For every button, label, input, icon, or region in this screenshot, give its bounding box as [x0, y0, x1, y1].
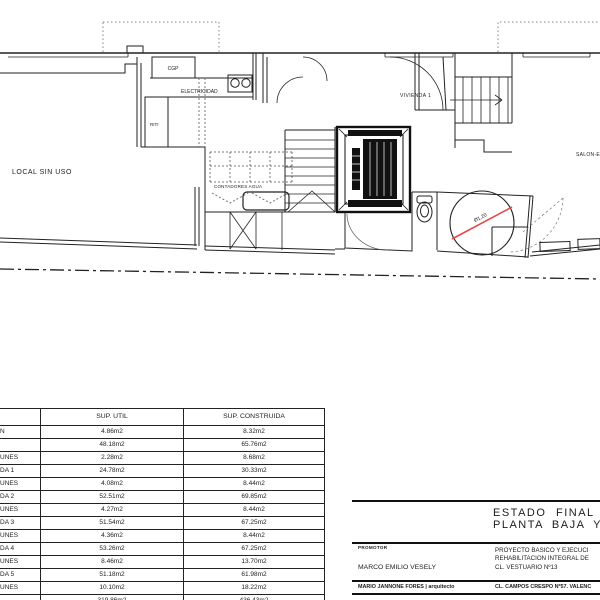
diameter-label: Ø1,20 [473, 212, 488, 224]
project-line: PROYECTO BASICO Y EJECUCI [495, 547, 589, 554]
staircase-upper [450, 53, 512, 152]
table-row: DA 252.51m269.85m2 [0, 491, 325, 504]
header-col-label [0, 409, 41, 426]
table-row: DA 551.18m261.98m2 [0, 569, 325, 582]
room-label-contadores: CONTADORES AGUA [214, 184, 262, 189]
elevator [337, 127, 410, 212]
floor-plan: LOCAL SIN USO CGP ELECTRICIDAD RITI [0, 0, 600, 300]
room-contadores [205, 127, 335, 254]
table-row: UNES4.27m28.44m2 [0, 504, 325, 517]
table-row: UNES10.10m218.22m2 [0, 582, 325, 595]
room-wc [412, 192, 437, 251]
drawing-sheet: LOCAL SIN USO CGP ELECTRICIDAD RITI [0, 0, 600, 600]
sheet-title: ESTADO FINAL [493, 507, 595, 519]
room-below-elevator [345, 212, 412, 251]
boundary-line [0, 269, 600, 279]
table-row: UNES4.36m28.44m2 [0, 530, 325, 543]
areas-table: SUP. UTIL SUP. CONSTRUIDA N4.86m28.32m2 … [0, 408, 325, 600]
promotor-label: PROMOTOR [358, 545, 387, 550]
sheet-subtitle: PLANTA BAJA Y EN [493, 519, 600, 531]
project-line: CL. VESTUARIO Nº13 [495, 564, 557, 571]
room-label-vivienda1: VIVIENDA 1 [400, 93, 431, 99]
room-label-electricidad: ELECTRICIDAD [181, 89, 218, 95]
titleblock-divider [352, 580, 600, 582]
table-header-row: SUP. UTIL SUP. CONSTRUIDA [0, 409, 325, 426]
room-electricidad [150, 53, 256, 147]
turning-circle-dimension: Ø1,20 [452, 207, 512, 239]
room-bath [437, 191, 563, 258]
promotor-name: MARCO EMILIO VESELY [358, 564, 436, 571]
architect-name: MARIO JANNONE FORES | arquitecto [358, 584, 454, 590]
titleblock-divider [352, 542, 600, 544]
header-sup-util: SUP. UTIL [41, 409, 184, 426]
header-sup-construida: SUP. CONSTRUIDA [184, 409, 325, 426]
project-line: REHABILITACION INTEGRAL DE [495, 555, 589, 562]
room-label-cgp: CGP [168, 66, 180, 72]
title-block: ESTADO FINAL PLANTA BAJA Y EN PROMOTOR P… [352, 500, 600, 595]
table-row: N4.86m28.32m2 [0, 426, 325, 439]
table-row: UNES2.28m28.68m2 [0, 452, 325, 465]
room-local-sin-uso [0, 57, 205, 249]
exterior-walls [0, 46, 600, 57]
table-row: UNES8.46m213.70m2 [0, 556, 325, 569]
dotted-overhang [103, 22, 600, 53]
room-label-riti: RITI [150, 122, 159, 127]
table-row: DA 351.54m267.25m2 [0, 517, 325, 530]
table-row: 319.86m2436.43m2 [0, 595, 325, 600]
titleblock-divider [352, 500, 600, 502]
entry-doors [263, 53, 455, 110]
titleblock-divider [352, 593, 600, 595]
architect-address: CL. CAMPOS CRESPO Nº57. VALENC [495, 584, 591, 590]
table-row: DA 453.26m267.25m2 [0, 543, 325, 556]
room-label-salon: SALON-E [576, 152, 600, 158]
table-row: DA 124.78m230.33m2 [0, 465, 325, 478]
table-row: UNES4.08m28.44m2 [0, 478, 325, 491]
table-row: 48.18m265.76m2 [0, 439, 325, 452]
room-label-local: LOCAL SIN USO [12, 169, 72, 176]
